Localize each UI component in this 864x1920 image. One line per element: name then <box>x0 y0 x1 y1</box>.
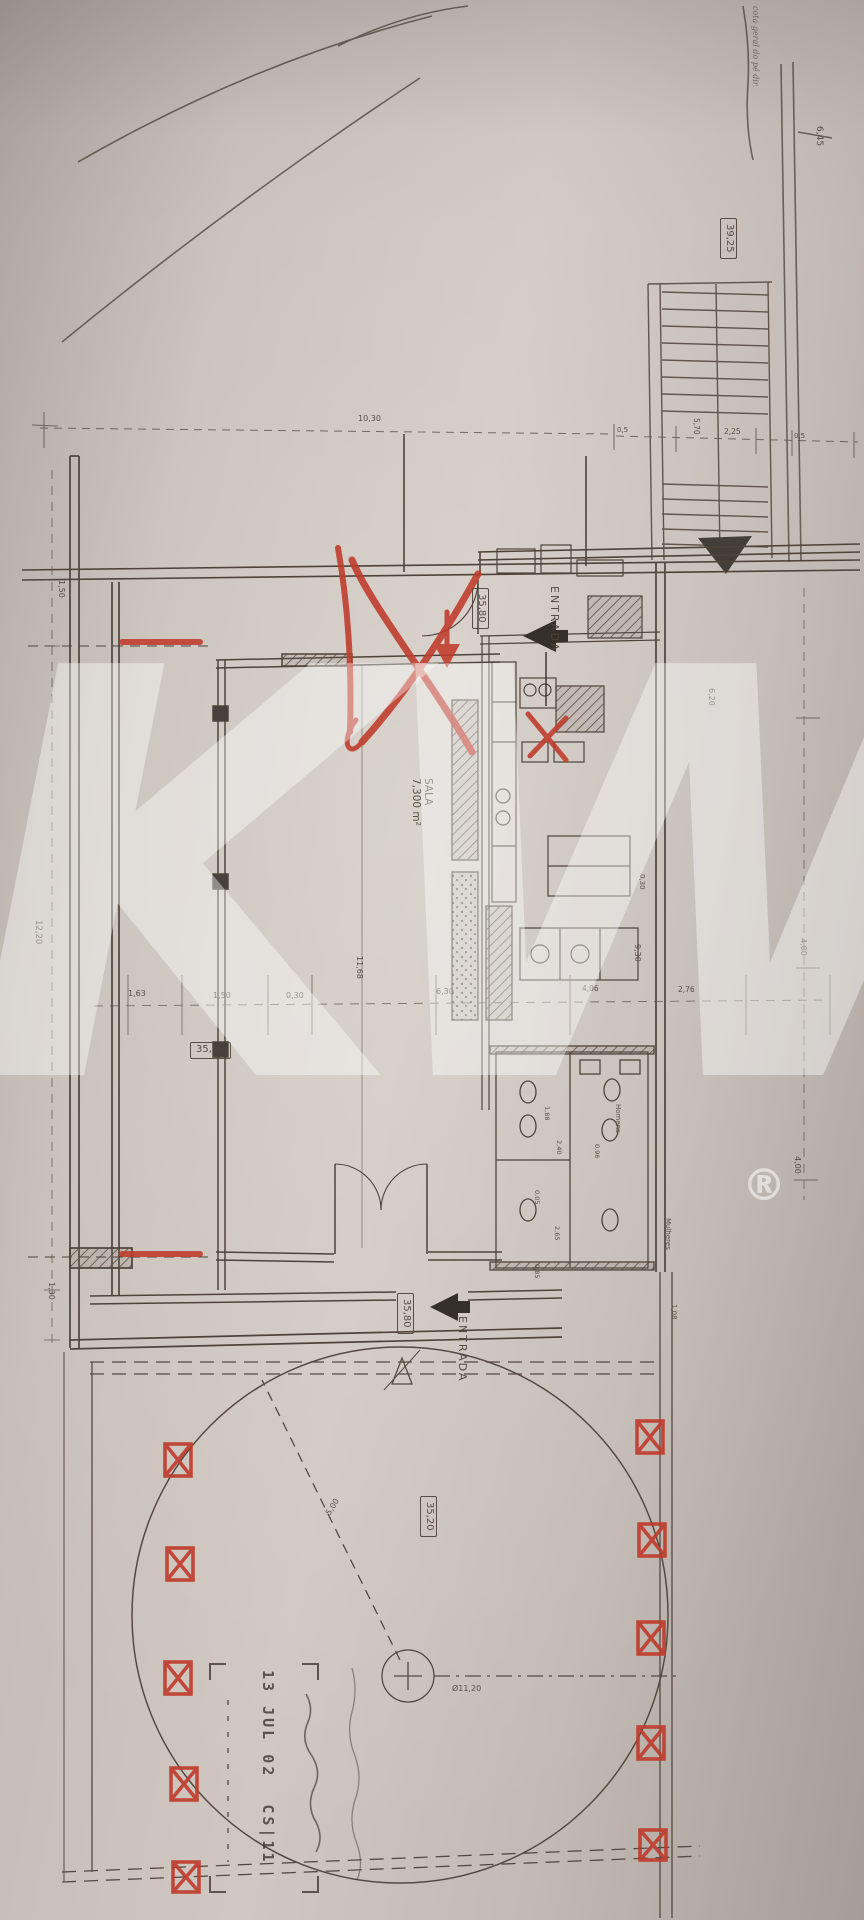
level-box-entrance-bottom: 35,80 <box>398 1293 415 1334</box>
terrace-circle <box>132 1347 668 1883</box>
dim-top-4: 0,5 <box>794 432 805 440</box>
stamp-date: 13 JUL 02 <box>259 1670 277 1778</box>
toilet-rooms <box>490 1046 654 1270</box>
dim-top-3: 2,25 <box>724 428 741 437</box>
site-note: cota geral do pé dir. <box>751 6 760 87</box>
dim-svc-0: 1,88 <box>543 1106 550 1120</box>
room-women-label: Mulheres <box>664 1218 672 1250</box>
dim-svc-3: 0,05 <box>533 1190 540 1204</box>
sala-name: SALA <box>422 778 434 826</box>
entrada-bottom-label: ENTRADA <box>455 1316 468 1382</box>
dim-svc-5: 0,85 <box>533 1264 540 1278</box>
dim-mid-1: 1,50 <box>213 991 231 1000</box>
dim-right-3: 4,00 <box>799 938 808 956</box>
signature-squiggle <box>305 1694 320 1852</box>
level-645: 6,45 <box>814 126 824 146</box>
dim-mid-0: 1,63 <box>128 989 146 998</box>
dim-mid-4: 6,30 <box>436 987 454 996</box>
entrada-bottom-arrow <box>430 1293 458 1321</box>
staircase <box>648 282 772 574</box>
dim-left-1: 12,20 <box>32 920 42 944</box>
dimension-chains <box>44 470 830 1345</box>
dim-mid-5: 4,06 <box>582 985 599 994</box>
sala-label: SALA 7,300 m² <box>410 778 434 826</box>
dim-right-1: 0,30 <box>638 874 646 890</box>
floor-plan-photo: cota geral do pé dir. 6,45 39,25 35,80 3… <box>0 0 864 1920</box>
red-column-marks <box>165 1421 666 1892</box>
level-box-terrace: 35,20 <box>421 1496 438 1537</box>
dim-top-1: 0,5 <box>617 426 628 434</box>
sala-area: 7,300 m² <box>410 778 422 826</box>
dim-svc-1: 2,40 <box>555 1140 562 1154</box>
dim-right-0: 6,20 <box>707 688 716 706</box>
dim-right-4: 4,00 <box>793 1156 802 1174</box>
dim-top-2: 5,70 <box>691 418 700 435</box>
dim-mid-2: 0,30 <box>286 991 304 1000</box>
circle-diameter-label: Ø11,20 <box>452 1684 481 1693</box>
dim-svc-2: 0,96 <box>593 1144 600 1158</box>
dim-top-0: 10,30 <box>358 414 381 423</box>
dim-right-2: 9,30 <box>633 944 642 962</box>
entrada-top-label: ENTRADA <box>547 586 560 652</box>
level-box-upper: 39,25 <box>721 218 738 259</box>
level-box-entrance-top: 35,80 <box>473 588 490 629</box>
dim-mid-3: 11,68 <box>355 956 364 979</box>
room-men-label: Homens <box>614 1104 622 1133</box>
level-box-hall: 35,80 <box>190 1042 231 1059</box>
stamp-ref: CS|11 <box>259 1804 277 1864</box>
dim-left-0: 1,50 <box>57 580 66 598</box>
terrace <box>62 1272 700 1918</box>
dim-right-5: 1,08 <box>670 1304 678 1320</box>
date-stamp: 13 JUL 02 CS|11 <box>259 1670 276 1864</box>
plan-linework <box>0 0 864 1920</box>
dim-left-2: 1,30 <box>47 1282 56 1300</box>
dim-mid-6: 2,76 <box>678 986 695 995</box>
dim-svc-4: 2,65 <box>553 1226 560 1240</box>
